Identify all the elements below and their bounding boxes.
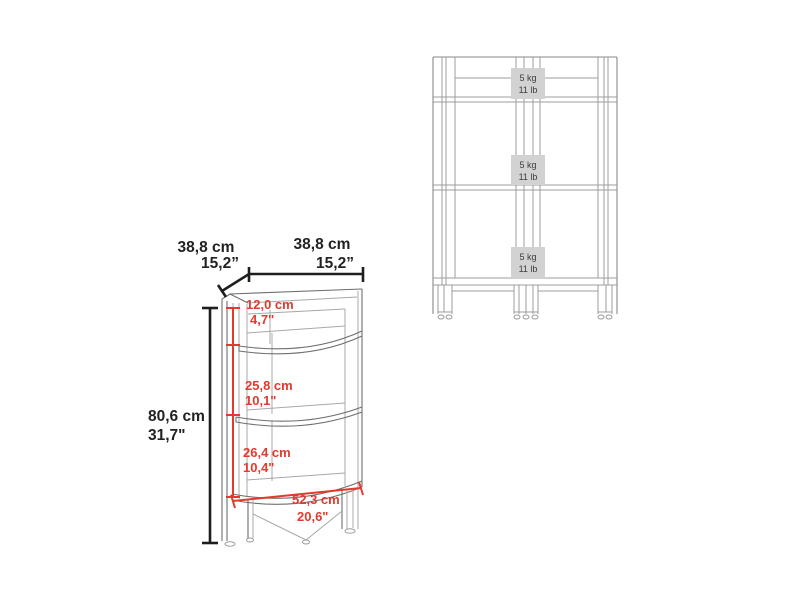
middle-section-inch-label: 10,1": [245, 393, 276, 408]
bottom-section-inch-label: 10,4": [243, 460, 274, 475]
foot: [598, 315, 604, 319]
perspective-view-drawing: [222, 289, 362, 546]
foot: [303, 540, 310, 544]
capacity-badge-middle: 5 kg 11 lb: [511, 155, 545, 185]
foot: [446, 315, 452, 319]
furniture-dimension-diagram: 38,8 cm 15,2” 38,8 cm 15,2” 80,6 cm 31,7…: [0, 0, 800, 600]
front-legs: [438, 285, 612, 319]
capacity-kg-label: 5 kg: [519, 252, 536, 262]
top-section-cm-label: 12,0 cm: [246, 297, 294, 312]
top-depth-cm-label: 38,8 cm: [178, 239, 235, 256]
foot: [247, 538, 254, 542]
middle-section-cm-label: 25,8 cm: [245, 378, 293, 393]
bottom-section-cm-label: 26,4 cm: [243, 445, 291, 460]
capacity-lb-label: 11 lb: [519, 85, 538, 95]
foot: [523, 315, 529, 319]
foot: [532, 315, 538, 319]
top-depth-inch-label: 15,2”: [201, 255, 239, 272]
top-width-inch-label: 15,2”: [316, 255, 354, 272]
top-width-dimension-line: [222, 274, 363, 291]
capacity-lb-label: 11 lb: [519, 172, 538, 182]
foot: [345, 529, 355, 533]
diagonal-inch-label: 20,6": [297, 509, 328, 524]
front-view-drawing: 5 kg 11 lb 5 kg 11 lb 5 kg 11 lb: [433, 57, 617, 319]
capacity-badge-bottom: 5 kg 11 lb: [511, 247, 545, 278]
top-width-cm-label: 38,8 cm: [294, 236, 351, 253]
total-height-cm-label: 80,6 cm: [148, 408, 205, 425]
diagonal-cm-label: 52,3 cm: [292, 492, 340, 507]
total-height-inch-label: 31,7": [148, 427, 186, 444]
foot: [514, 315, 520, 319]
top-section-inch-label: 4,7": [250, 312, 274, 327]
capacity-kg-label: 5 kg: [519, 73, 536, 83]
top-shelf: [239, 326, 362, 354]
capacity-lb-label: 11 lb: [519, 264, 538, 274]
diagram-canvas: 38,8 cm 15,2” 38,8 cm 15,2” 80,6 cm 31,7…: [0, 0, 800, 600]
capacity-badge-top: 5 kg 11 lb: [511, 68, 545, 99]
capacity-kg-label: 5 kg: [519, 160, 536, 170]
foot: [225, 542, 235, 546]
corner-post: [222, 294, 248, 541]
foot: [438, 315, 444, 319]
foot: [606, 315, 612, 319]
